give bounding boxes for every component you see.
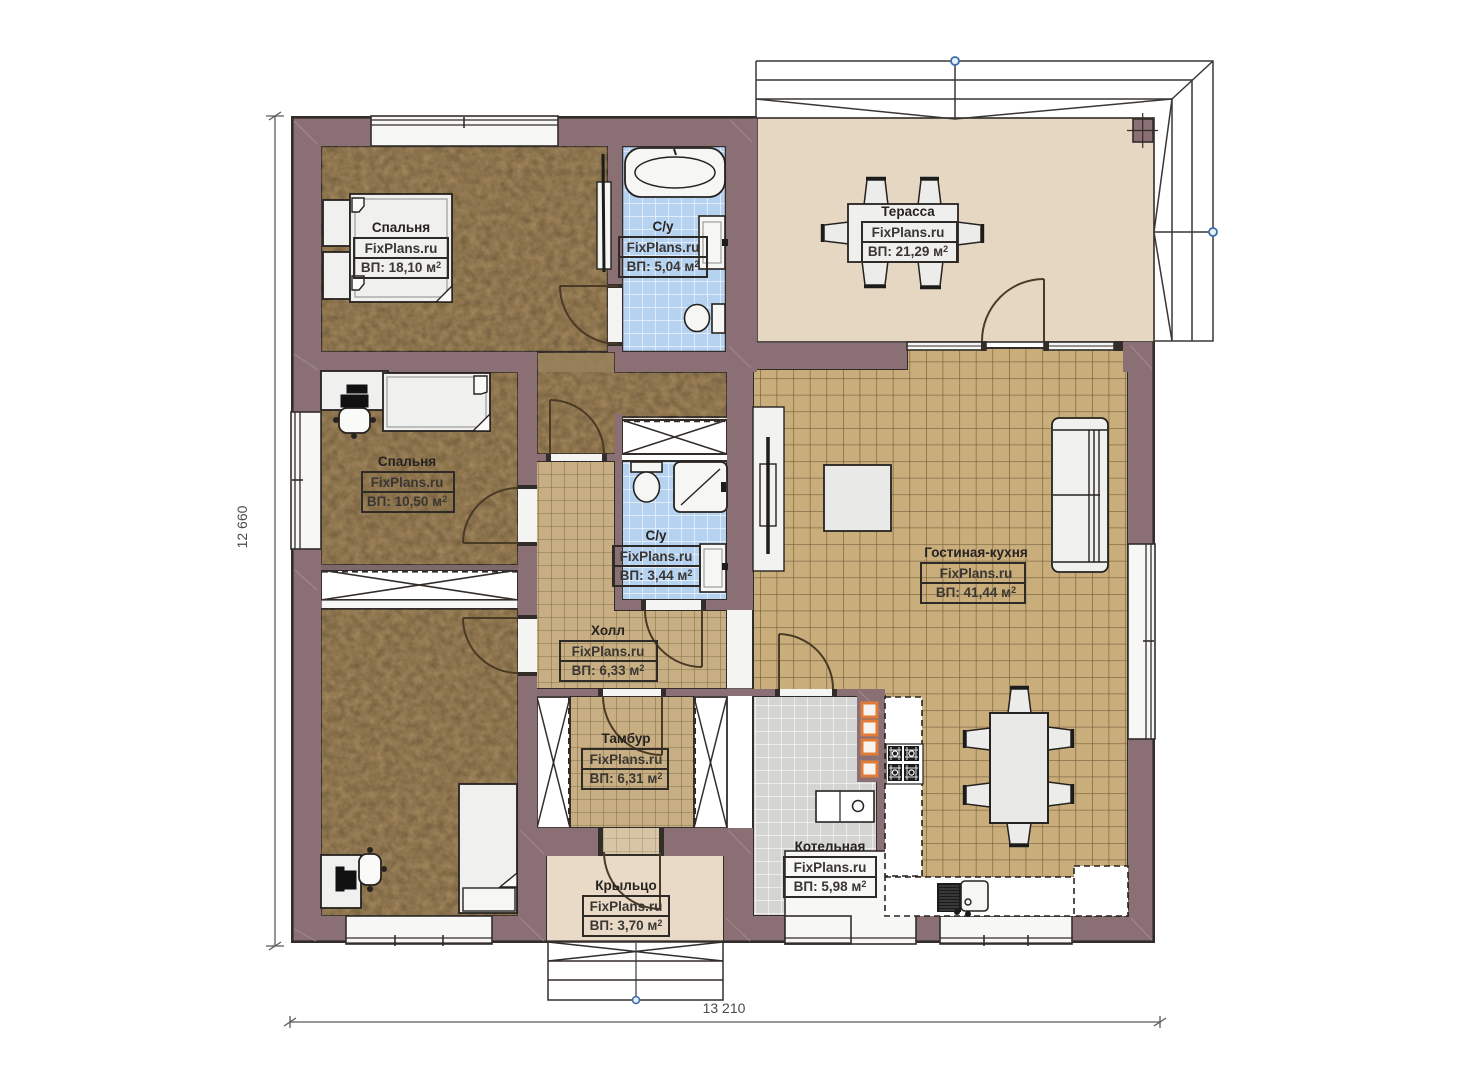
svg-text:Крыльцо: Крыльцо xyxy=(595,878,656,893)
svg-text:ВП: 6,31 м2: ВП: 6,31 м2 xyxy=(590,771,663,786)
svg-text:ВП: 10,50 м2: ВП: 10,50 м2 xyxy=(367,494,447,509)
svg-text:FixPlans.ru: FixPlans.ru xyxy=(590,752,663,767)
svg-text:FixPlans.ru: FixPlans.ru xyxy=(940,566,1013,581)
svg-text:ВП: 18,10 м2: ВП: 18,10 м2 xyxy=(361,260,441,275)
svg-text:Терасса: Терасса xyxy=(881,204,935,219)
svg-text:Тамбур: Тамбур xyxy=(602,731,651,746)
svg-text:ВП: 5,98 м2: ВП: 5,98 м2 xyxy=(794,879,867,894)
svg-text:ВП: 6,33 м2: ВП: 6,33 м2 xyxy=(572,663,645,678)
svg-text:12 660: 12 660 xyxy=(234,505,250,548)
svg-text:ВП: 5,04 м2: ВП: 5,04 м2 xyxy=(627,259,700,274)
svg-text:13 210: 13 210 xyxy=(703,1000,746,1016)
svg-text:ВП: 3,44 м2: ВП: 3,44 м2 xyxy=(620,568,693,583)
svg-text:FixPlans.ru: FixPlans.ru xyxy=(572,644,645,659)
svg-text:Гостиная-кухня: Гостиная-кухня xyxy=(924,545,1027,560)
svg-text:Спальня: Спальня xyxy=(372,220,430,235)
svg-text:ВП: 3,70 м2: ВП: 3,70 м2 xyxy=(590,918,663,933)
svg-text:Котельная: Котельная xyxy=(795,839,866,854)
svg-text:ВП: 21,29 м2: ВП: 21,29 м2 xyxy=(868,244,948,259)
svg-text:ВП: 41,44 м2: ВП: 41,44 м2 xyxy=(936,585,1016,600)
svg-text:FixPlans.ru: FixPlans.ru xyxy=(371,475,444,490)
svg-text:FixPlans.ru: FixPlans.ru xyxy=(365,241,438,256)
svg-text:Холл: Холл xyxy=(591,623,625,638)
svg-text:Спальня: Спальня xyxy=(378,454,436,469)
svg-text:С/у: С/у xyxy=(652,219,674,234)
svg-text:С/у: С/у xyxy=(645,528,667,543)
svg-text:FixPlans.ru: FixPlans.ru xyxy=(627,240,700,255)
svg-text:FixPlans.ru: FixPlans.ru xyxy=(794,860,867,875)
svg-text:FixPlans.ru: FixPlans.ru xyxy=(872,225,945,240)
svg-text:FixPlans.ru: FixPlans.ru xyxy=(590,899,663,914)
svg-text:FixPlans.ru: FixPlans.ru xyxy=(620,549,693,564)
